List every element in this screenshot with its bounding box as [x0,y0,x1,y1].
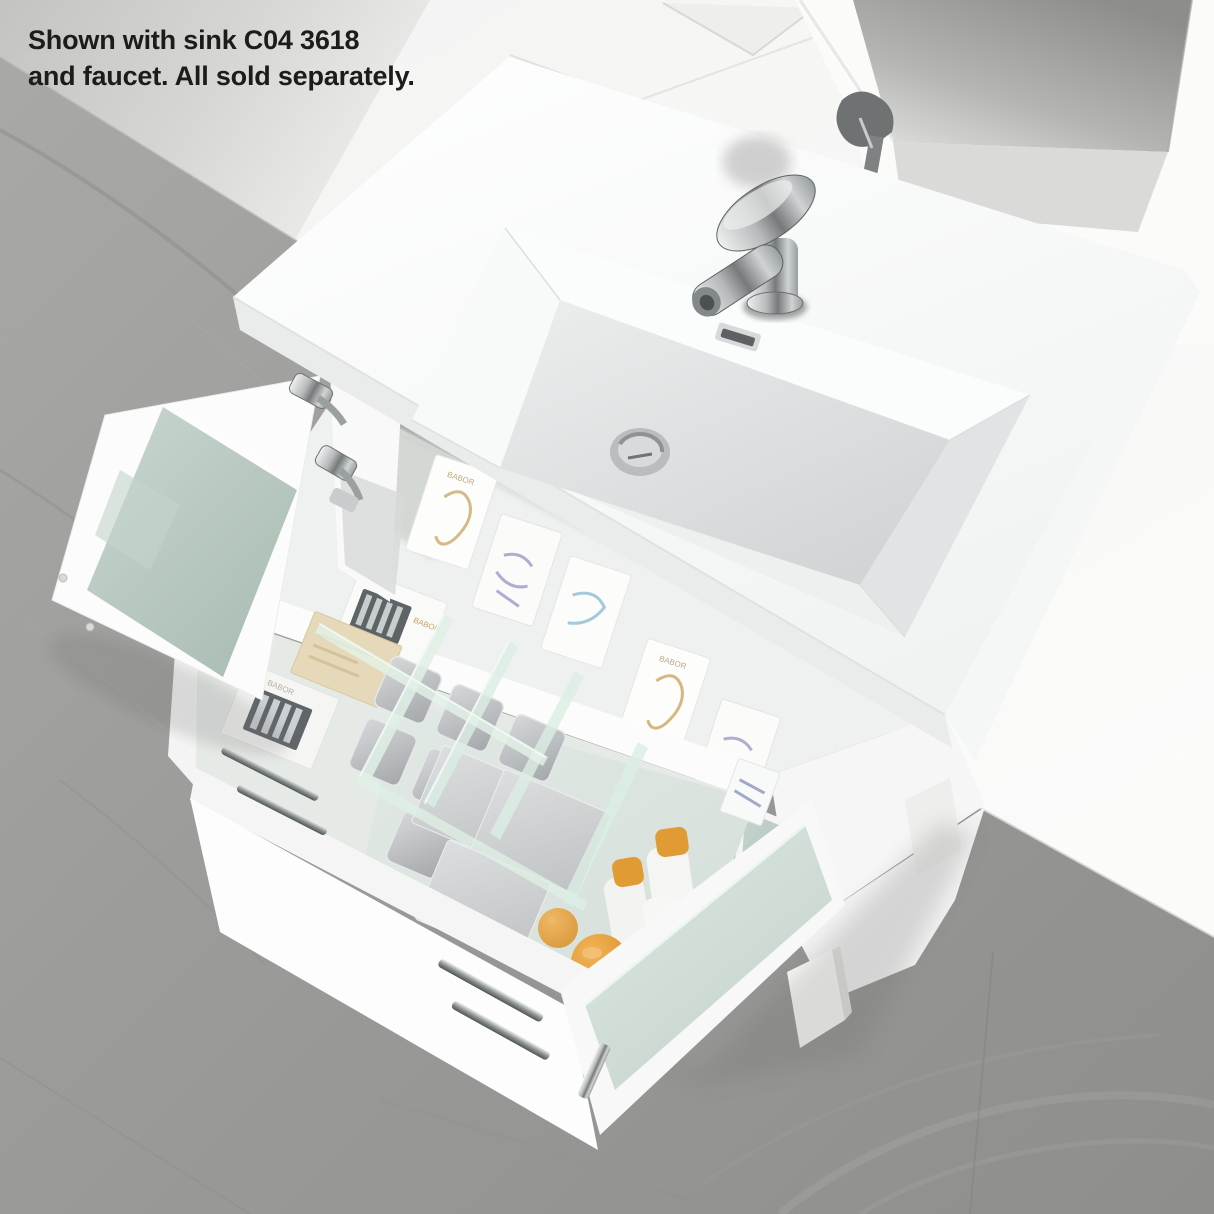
bottle-cap [654,826,690,858]
caption-line1: Shown with sink C04 3618 [28,25,359,55]
jar-highlight [582,947,602,959]
door-screw [86,623,94,631]
faucet-base [747,292,803,314]
bottle-cap [611,856,645,889]
mirror-glass [853,0,1192,152]
door-screw [59,574,67,582]
vanity-scene: BABOR BABOR [0,0,1214,1214]
drain [610,428,670,476]
caption-line2: and faucet. All sold separately. [28,61,415,91]
product-photo: BABOR BABOR [0,0,1214,1214]
caption: Shown with sink C04 3618 and faucet. All… [28,22,415,94]
orange-jar-small [538,908,578,948]
